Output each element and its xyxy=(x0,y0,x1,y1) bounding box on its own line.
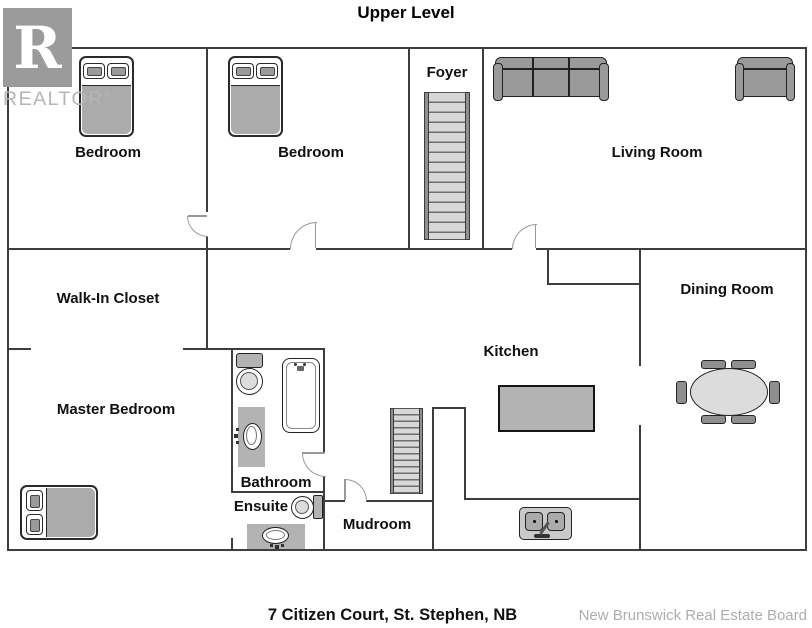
wall xyxy=(206,250,208,350)
wall xyxy=(408,47,410,250)
room-label-bathroom: Bathroom xyxy=(241,474,312,491)
room-label-bedroom-2: Bedroom xyxy=(278,144,344,161)
room-label-ensuite: Ensuite xyxy=(234,498,288,515)
wall xyxy=(231,350,233,493)
room-label-living-room: Living Room xyxy=(612,144,703,161)
dining-chair xyxy=(731,360,756,369)
room-label-kitchen: Kitchen xyxy=(483,343,538,360)
toilet xyxy=(291,496,314,519)
wall xyxy=(323,350,325,453)
wall xyxy=(231,538,233,550)
realtor-logo-icon: R xyxy=(3,8,72,87)
wall xyxy=(639,250,641,366)
wall xyxy=(432,407,434,550)
wall xyxy=(547,283,641,285)
real-estate-board-credit: New Brunswick Real Estate Board xyxy=(579,607,807,624)
pillow xyxy=(256,63,278,79)
wall xyxy=(7,348,31,350)
dining-chair xyxy=(701,360,726,369)
wall xyxy=(536,248,807,250)
sofa xyxy=(495,57,607,97)
toilet-tank xyxy=(236,353,263,368)
room-label-foyer: Foyer xyxy=(427,64,468,81)
realtor-logo-letter: R xyxy=(13,19,61,77)
wall xyxy=(7,47,9,551)
door-arc xyxy=(290,222,317,249)
wall xyxy=(316,248,512,250)
dining-chair xyxy=(769,381,780,404)
wall xyxy=(7,248,290,250)
pillow xyxy=(107,63,129,79)
floor-plan: Upper Level xyxy=(0,0,812,628)
room-label-mudroom: Mudroom xyxy=(343,516,411,533)
double-bed xyxy=(228,56,283,137)
realtor-wordmark: REALTOR® xyxy=(3,88,110,111)
kitchen-island xyxy=(498,385,595,432)
pillow xyxy=(26,514,43,535)
wall xyxy=(464,498,641,500)
wall xyxy=(366,500,433,502)
door-arc xyxy=(512,224,537,249)
door-arc xyxy=(187,216,208,237)
page-title: Upper Level xyxy=(0,3,812,23)
wall xyxy=(183,348,325,350)
kitchen-staircase xyxy=(390,408,423,494)
wall xyxy=(231,491,325,493)
toilet-tank xyxy=(313,495,323,519)
wall xyxy=(206,47,208,212)
wall xyxy=(482,47,484,250)
dining-chair xyxy=(731,415,756,424)
bathtub xyxy=(282,358,320,433)
pillow xyxy=(83,63,105,79)
toilet xyxy=(236,368,263,395)
kitchen-sink xyxy=(519,507,572,540)
pillow xyxy=(232,63,254,79)
room-label-dining-room: Dining Room xyxy=(680,279,775,300)
wall xyxy=(325,500,345,502)
pillow xyxy=(26,490,43,511)
dining-chair xyxy=(676,381,687,404)
armchair xyxy=(737,57,793,97)
vanity xyxy=(247,524,305,549)
wall xyxy=(464,407,466,500)
room-label-master-bedroom: Master Bedroom xyxy=(57,401,175,418)
wall xyxy=(7,549,807,551)
master-bed xyxy=(20,485,98,540)
room-label-walk-in-closet: Walk-In Closet xyxy=(57,290,160,307)
wall xyxy=(639,425,641,551)
wall xyxy=(432,407,466,409)
foyer-staircase xyxy=(424,92,470,240)
room-label-bedroom-1: Bedroom xyxy=(75,144,141,161)
wall xyxy=(805,47,807,551)
dining-table xyxy=(690,368,768,416)
realtor-wordmark-text: REALTOR xyxy=(3,88,104,110)
vanity xyxy=(238,407,265,467)
door-arc xyxy=(345,479,367,501)
dining-chair xyxy=(701,415,726,424)
wall xyxy=(7,47,807,49)
registered-mark: ® xyxy=(104,90,111,100)
wall xyxy=(547,250,549,284)
wall xyxy=(323,476,325,550)
